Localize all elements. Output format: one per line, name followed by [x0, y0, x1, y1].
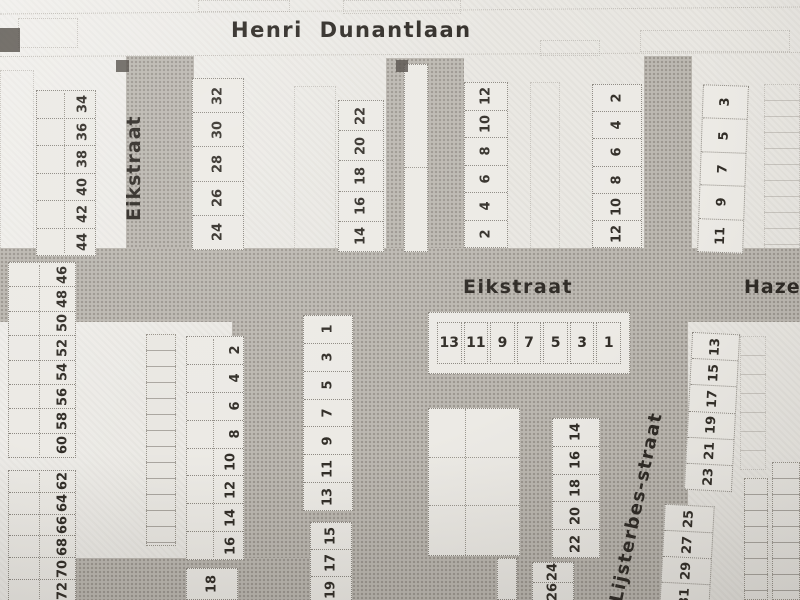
house-number: 18: [569, 479, 584, 497]
building-block-1-13-column: 135791113: [303, 315, 353, 511]
garage-boxes-strip: [772, 462, 800, 600]
house-number-cell: 70: [9, 557, 75, 579]
house-number-cell: 3: [703, 85, 748, 119]
building-block-unnumbered-a: [404, 64, 428, 252]
street-label-eikstraat-north: Eikstraat: [123, 115, 145, 221]
house-number-cell: 17: [311, 549, 351, 576]
house-number: 30: [211, 121, 226, 139]
house-number-cell: 7: [700, 151, 745, 186]
house-number: 2: [479, 229, 494, 238]
house-number-cell: 8: [465, 137, 507, 165]
house-number: 7: [715, 164, 730, 174]
house-number: 5: [551, 335, 561, 351]
house-number-cell: 46: [9, 263, 75, 286]
house-number-cell: 31: [660, 582, 709, 600]
house-number-cell: 5: [304, 371, 352, 399]
house-number: 10: [479, 115, 494, 133]
house-number: 6: [610, 148, 625, 157]
house-number: 26: [546, 583, 561, 600]
house-number: 20: [569, 507, 584, 525]
house-number-cell: 18: [187, 569, 237, 599]
block-divider: [465, 409, 466, 555]
solid-square-marker-icon: [396, 60, 408, 72]
house-number-cell: 14: [553, 419, 599, 446]
house-number-cell: 13: [304, 482, 352, 510]
house-number-cell: 14: [339, 221, 383, 251]
house-number-cell: 9: [490, 322, 515, 364]
house-number-cell: 15: [690, 358, 737, 387]
house-number: 2: [228, 346, 243, 355]
house-number-cell: 21: [686, 436, 733, 465]
garden-strip-outline: [294, 86, 336, 250]
house-number-cell: 58: [9, 408, 75, 432]
building-block-62-72: 626466687072: [8, 470, 76, 600]
building-block-15-19: 151719: [310, 522, 352, 600]
house-number: 18: [205, 575, 220, 593]
house-number: 17: [705, 390, 721, 409]
house-number-cell: 2: [593, 85, 641, 111]
house-number: 5: [717, 131, 732, 141]
house-number: 8: [479, 147, 494, 156]
house-number: 9: [498, 335, 508, 351]
house-number-cell: 20: [553, 501, 599, 529]
house-number-cell: 44: [37, 228, 95, 256]
house-number-cell: 18: [553, 474, 599, 502]
garage-boxes-strip: [740, 336, 766, 470]
house-number-cell: 19: [311, 576, 351, 600]
house-number: 16: [223, 537, 238, 555]
building-block-34-44: 343638404244: [36, 90, 96, 256]
house-number: 4: [610, 121, 625, 130]
house-number-cell: 16: [187, 531, 243, 559]
house-number-cell: 68: [9, 535, 75, 557]
house-number-cell: 23: [685, 463, 732, 492]
garage-boxes-strip: [146, 334, 176, 546]
house-number-cell: 34: [37, 91, 95, 118]
house-number: 42: [75, 205, 90, 223]
house-number: 13: [440, 335, 459, 351]
house-number-cell: 64: [9, 492, 75, 514]
house-number-cell: 9: [304, 426, 352, 454]
house-number: 66: [55, 516, 70, 534]
house-number: 10: [223, 453, 238, 471]
house-number: 24: [211, 223, 226, 241]
house-number: 3: [321, 353, 336, 362]
house-number-cell: 22: [553, 529, 599, 557]
building-block-2-16: 246810121416: [186, 336, 244, 560]
block-divider: [429, 505, 519, 506]
house-number-cell: 10: [465, 110, 507, 138]
house-number-cell: 29: [662, 556, 711, 584]
house-number: 11: [713, 226, 729, 245]
house-number: 12: [223, 481, 238, 499]
house-number: 16: [569, 451, 584, 469]
house-number-cell: 48: [9, 286, 75, 310]
house-number: 21: [702, 442, 718, 461]
building-block-46-60: 4648505254565860: [8, 262, 76, 458]
house-number-cell: 7: [517, 322, 542, 364]
house-number: 23: [701, 468, 717, 487]
house-number-cell: 13: [692, 333, 739, 361]
house-number: 20: [354, 137, 369, 155]
house-number: 22: [569, 535, 584, 553]
house-number-cell: 62: [9, 471, 75, 492]
house-number-cell: 16: [553, 446, 599, 474]
house-number: 3: [718, 97, 733, 107]
house-number-cell: 19: [688, 410, 735, 439]
house-number: 9: [714, 198, 729, 208]
house-number: 27: [680, 535, 696, 554]
house-number-cell: 11: [304, 454, 352, 482]
house-number: 19: [703, 416, 719, 435]
house-number: 31: [677, 587, 693, 600]
building-block-unnumbered-c: [428, 408, 520, 556]
house-number-cell: 8: [187, 420, 243, 448]
building-block-14-22-mid: 1416182022: [552, 418, 600, 558]
house-number-cell: 28: [193, 146, 243, 180]
street-eikstraat-band: [0, 248, 800, 322]
building-block-18: 18: [186, 568, 238, 600]
house-number-cell: 10: [187, 448, 243, 476]
house-number: 6: [228, 402, 243, 411]
street-hazelaarstraat-segment: [644, 56, 692, 256]
house-number-cell: 26: [533, 582, 573, 600]
block-divider: [405, 167, 427, 168]
house-number: 9: [321, 436, 336, 445]
house-number: 70: [55, 560, 70, 578]
building-block-2-12-west: 12108642: [464, 82, 508, 248]
house-number-cell: 4: [593, 111, 641, 138]
building-block-unnumbered-d: [497, 558, 517, 600]
house-number-cell: 6: [187, 392, 243, 420]
house-number-cell: 16: [339, 191, 383, 221]
block-divider: [429, 457, 519, 458]
house-number-cell: 10: [593, 193, 641, 220]
house-number: 12: [610, 225, 625, 243]
building-block-25-31: 25272931: [659, 504, 714, 600]
house-number: 28: [211, 155, 226, 173]
house-number: 2: [610, 94, 625, 103]
printed-street-map: 343638404244 4648505254565860 6264666870…: [0, 0, 800, 600]
house-number-cell: 24: [193, 215, 243, 249]
house-number: 24: [546, 563, 561, 581]
house-number: 54: [55, 363, 70, 381]
house-number: 44: [75, 233, 90, 251]
house-number: 17: [324, 554, 339, 572]
house-number: 8: [228, 430, 243, 439]
house-number-cell: 42: [37, 200, 95, 228]
house-number: 3: [577, 335, 587, 351]
house-number-cell: 24: [533, 563, 573, 582]
house-number-cell: 7: [304, 399, 352, 427]
house-number: 6: [479, 174, 494, 183]
house-number-cell: 8: [593, 166, 641, 193]
house-number-cell: 4: [465, 192, 507, 220]
house-number: 34: [75, 95, 90, 113]
house-number: 1: [321, 325, 336, 334]
house-number-cell: 12: [593, 220, 641, 247]
house-number: 18: [354, 167, 369, 185]
building-block-14-22-north: 2220181614: [338, 100, 384, 252]
house-number: 13: [707, 337, 723, 356]
house-number: 13: [321, 488, 336, 506]
street-label-hazelaarstraat: Hazela: [744, 276, 800, 298]
building-block-2-12-east: 24681012: [592, 84, 642, 248]
house-number: 50: [55, 314, 70, 332]
house-number-cell: 30: [193, 112, 243, 146]
house-number-cell: 9: [699, 184, 744, 219]
house-number-cell: 1: [596, 322, 621, 364]
house-number-cell: 15: [311, 523, 351, 549]
house-number: 22: [354, 107, 369, 125]
background-building-outline: [540, 40, 600, 56]
building-block-1-13-row: 131197531: [428, 312, 630, 374]
house-number-cell: 60: [9, 433, 75, 457]
house-number-cell: 2: [465, 220, 507, 248]
house-number: 62: [55, 472, 70, 490]
house-number: 40: [75, 178, 90, 196]
house-number: 7: [321, 408, 336, 417]
house-number: 15: [324, 527, 339, 545]
house-number: 56: [55, 388, 70, 406]
house-number: 1: [604, 335, 614, 351]
house-number-cell: 14: [187, 503, 243, 531]
house-number-cell: 27: [663, 530, 712, 558]
house-number: 25: [681, 509, 697, 528]
house-number-cell: 54: [9, 360, 75, 384]
house-number: 8: [610, 175, 625, 184]
house-number-cell: 5: [543, 322, 568, 364]
house-number: 48: [55, 290, 70, 308]
house-number-cell: 6: [593, 138, 641, 165]
house-number: 4: [228, 374, 243, 383]
house-number-cell: 12: [465, 83, 507, 110]
background-building-outline: [343, 0, 461, 14]
house-number: 32: [211, 87, 226, 105]
building-block-13-23: 131517192123: [684, 332, 740, 492]
house-number-cell: 36: [37, 118, 95, 146]
building-block-3-11: 357911: [697, 84, 749, 254]
house-number-cell: 26: [193, 181, 243, 215]
house-number-cell: 12: [187, 475, 243, 503]
garage-boxes-strip: [744, 478, 768, 600]
house-number-cell: 13: [437, 322, 462, 364]
house-number: 38: [75, 150, 90, 168]
house-number-cell: 20: [339, 130, 383, 160]
house-number: 72: [55, 582, 70, 600]
garage-boxes-strip: [764, 84, 800, 256]
house-number: 29: [678, 561, 694, 580]
house-number-cell: 5: [702, 118, 747, 153]
garden-strip-outline: [530, 82, 560, 252]
house-number: 58: [55, 412, 70, 430]
building-block-24-26: 2426: [532, 562, 574, 600]
street-label-eikstraat-mid: Eikstraat: [463, 276, 573, 298]
house-number-cell: 11: [698, 218, 743, 253]
house-number: 15: [706, 363, 722, 382]
house-number-cell: 22: [339, 101, 383, 130]
house-number: 7: [524, 335, 534, 351]
house-number-cell: 52: [9, 335, 75, 359]
background-building-outline: [0, 70, 34, 250]
background-building-outline: [198, 0, 290, 12]
house-number-cell: 4: [187, 364, 243, 392]
house-number: 11: [321, 460, 336, 478]
house-number: 16: [354, 197, 369, 215]
house-number-cell: 3: [304, 343, 352, 371]
house-number: 10: [610, 198, 625, 216]
house-number: 26: [211, 189, 226, 207]
street-label-henri-dunantlaan: Henri Dunantlaan: [231, 18, 472, 42]
house-number-cell: 3: [570, 322, 595, 364]
house-number: 52: [55, 339, 70, 357]
house-number: 14: [354, 227, 369, 245]
house-number: 36: [75, 123, 90, 141]
house-number-cell: 40: [37, 173, 95, 201]
house-number: 46: [55, 266, 70, 284]
house-number: 64: [55, 494, 70, 512]
house-number-cell: 25: [664, 505, 713, 532]
house-number: 19: [324, 581, 339, 599]
solid-square-marker-icon: [116, 60, 129, 72]
house-number: 68: [55, 538, 70, 556]
solid-square-marker-icon: [0, 28, 20, 52]
house-number: 5: [321, 381, 336, 390]
house-number-cell: 56: [9, 384, 75, 408]
house-number: 12: [479, 87, 494, 105]
house-number-cell: 18: [339, 160, 383, 190]
house-number-cell: 38: [37, 145, 95, 173]
house-number: 14: [223, 509, 238, 527]
house-number-cell: 2: [187, 337, 243, 364]
house-number: 60: [55, 436, 70, 454]
house-number-cell: 17: [689, 384, 736, 413]
house-number: 4: [479, 202, 494, 211]
house-number-cell: 50: [9, 311, 75, 335]
building-block-24-32: 3230282624: [192, 78, 244, 250]
house-number-cell: 66: [9, 514, 75, 536]
house-number-cell: 6: [465, 165, 507, 193]
house-number-cell: 11: [464, 322, 489, 364]
house-number: 11: [466, 335, 485, 351]
house-number-cell: 72: [9, 579, 75, 600]
background-building-outline: [18, 18, 78, 48]
house-number: 14: [569, 423, 584, 441]
house-number-cell: 1: [304, 316, 352, 343]
background-building-outline: [640, 30, 790, 52]
house-number-cell: 32: [193, 79, 243, 112]
